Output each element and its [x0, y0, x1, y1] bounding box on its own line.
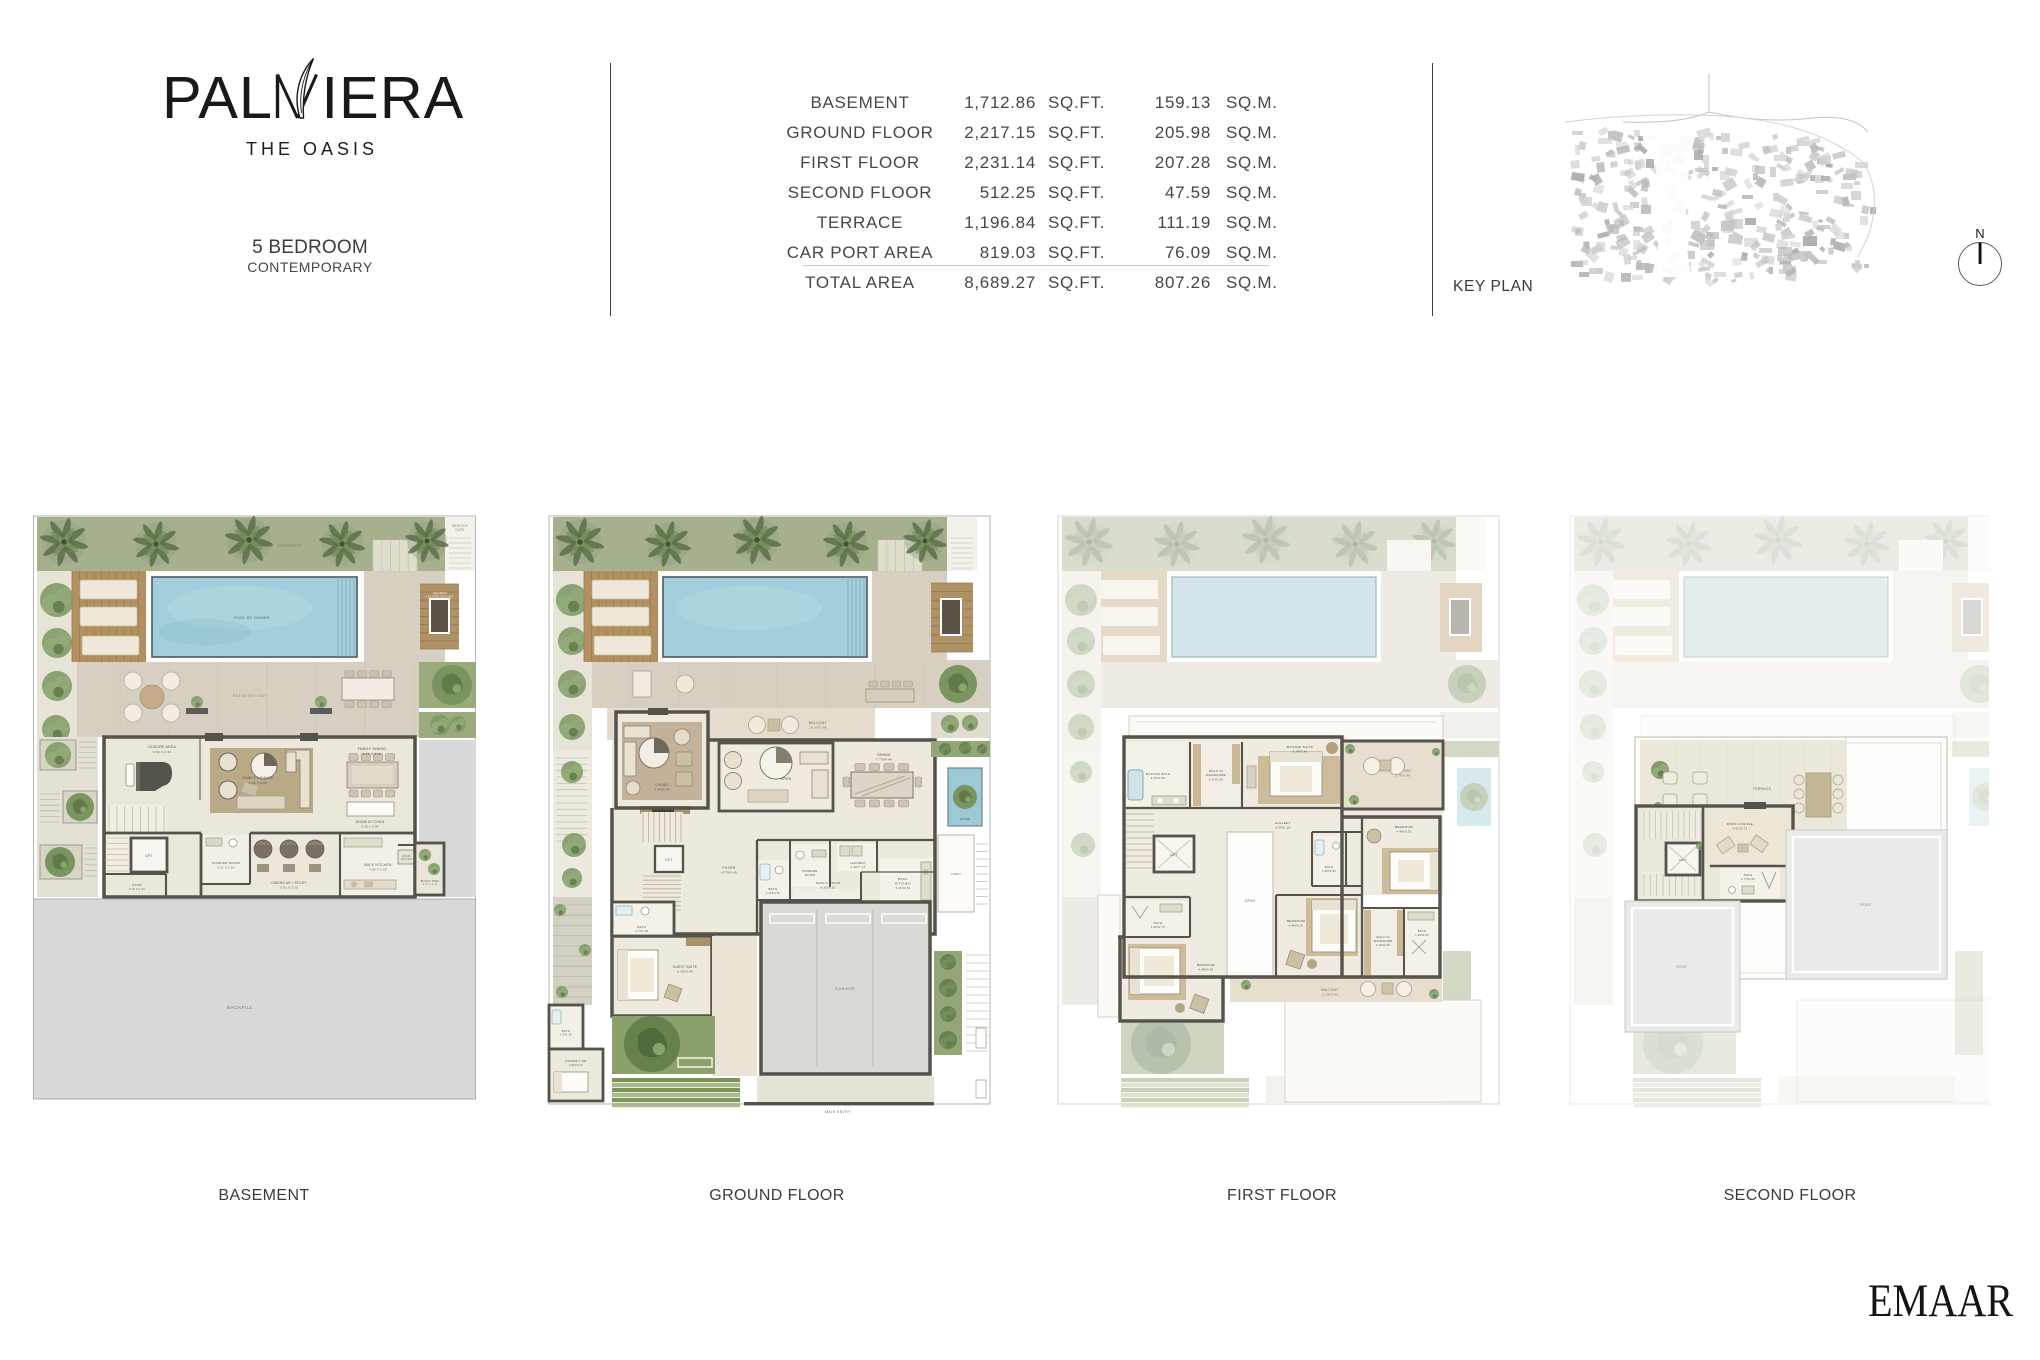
- svg-text:FAMILY DINING: FAMILY DINING: [358, 747, 387, 751]
- svg-text:STOR: STOR: [132, 883, 142, 887]
- svg-text:4.35X3.10: 4.35X3.10: [821, 885, 836, 889]
- svg-text:N: N: [1975, 226, 1984, 241]
- svg-text:WARDROBE: WARDROBE: [1206, 773, 1226, 777]
- svg-text:DRIVER'S RM: DRIVER'S RM: [565, 1059, 587, 1063]
- svg-text:PAL: PAL: [162, 64, 273, 131]
- svg-text:4.46 X 3.80: 4.46 X 3.80: [249, 781, 268, 785]
- svg-text:1.48X3.60: 1.48X3.60: [1415, 934, 1429, 937]
- svg-text:4.48X4.40: 4.48X4.40: [1199, 967, 1214, 971]
- svg-text:LAUNDRY: LAUNDRY: [850, 861, 866, 865]
- svg-text:ROOF: ROOF: [1676, 965, 1688, 969]
- svg-text:LIFT: LIFT: [665, 858, 673, 862]
- svg-text:BALCONY: BALCONY: [809, 721, 828, 725]
- svg-text:FOYER: FOYER: [722, 866, 735, 870]
- svg-text:11.08X3.45: 11.08X3.45: [1322, 992, 1339, 996]
- svg-text:4.46X3.51: 4.46X3.51: [896, 886, 911, 890]
- svg-text:BUGGY PARK: BUGGY PARK: [421, 880, 440, 883]
- svg-text:MASTER BATH: MASTER BATH: [1146, 772, 1170, 776]
- svg-text:3.61 X 2.20: 3.61 X 2.20: [280, 886, 298, 890]
- svg-text:FAMILY LOUNGE: FAMILY LOUNGE: [243, 776, 274, 780]
- svg-text:4.30X3.40: 4.30X3.40: [1151, 776, 1166, 780]
- svg-text:GATE: GATE: [455, 528, 465, 532]
- svg-text:1.88X2.75: 1.88X2.75: [1151, 926, 1165, 929]
- svg-text:ROOM: ROOM: [805, 873, 816, 877]
- svg-text:OPEN: OPEN: [951, 872, 961, 876]
- svg-text:CABINS AR / STUDY: CABINS AR / STUDY: [271, 881, 307, 885]
- svg-text:LIFT: LIFT: [1679, 858, 1686, 862]
- svg-text:2.71X1.80: 2.71X1.80: [1741, 878, 1755, 881]
- svg-text:3.60X3.20: 3.60X3.20: [569, 1064, 583, 1067]
- svg-text:SHOW KITCHEN: SHOW KITCHEN: [356, 820, 385, 824]
- svg-text:3.19 X 1.20: 3.19 X 1.20: [129, 888, 145, 891]
- svg-text:OPEN: OPEN: [1245, 899, 1256, 903]
- svg-text:EMAAR: EMAAR: [1868, 1276, 2014, 1326]
- svg-text:3.20 X 2.70: 3.20 X 2.70: [423, 884, 438, 886]
- svg-text:BATH: BATH: [638, 925, 647, 929]
- svg-text:ROOF LOUNGE: ROOF LOUNGE: [1727, 822, 1753, 826]
- svg-text:5.25 X 3.66: 5.25 X 3.66: [363, 752, 382, 756]
- svg-text:BEDROOM: BEDROOM: [1395, 825, 1413, 829]
- svg-text:DINING: DINING: [877, 753, 891, 757]
- svg-text:POOL BY OWNER: POOL BY OWNER: [234, 616, 270, 620]
- svg-text:POWDER ROOM: POWDER ROOM: [212, 861, 240, 865]
- svg-text:BATH: BATH: [1325, 865, 1334, 869]
- svg-text:1.2X1.35: 1.2X1.35: [560, 1034, 572, 1037]
- svg-text:LIVING: LIVING: [656, 783, 669, 787]
- svg-text:4.73X3.49: 4.73X3.49: [721, 871, 737, 875]
- svg-text:LEISURE AREA: LEISURE AREA: [148, 745, 177, 749]
- svg-text:WAITER: WAITER: [401, 858, 412, 861]
- svg-text:OPEN: OPEN: [781, 777, 792, 781]
- svg-text:4.61X2.71: 4.61X2.71: [1733, 826, 1748, 830]
- svg-text:BACK: BACK: [898, 877, 908, 881]
- svg-text:BATH: BATH: [562, 1029, 570, 1033]
- svg-text:5.25 x 2.00: 5.25 x 2.00: [361, 824, 378, 828]
- svg-text:TERRACE: TERRACE: [1753, 787, 1772, 791]
- svg-text:BATH: BATH: [1418, 929, 1426, 933]
- svg-text:GARAGE: GARAGE: [835, 986, 856, 991]
- svg-text:MAID'S ROOM: MAID'S ROOM: [816, 881, 840, 885]
- svg-text:1.88X3.80: 1.88X3.80: [1322, 870, 1336, 873]
- svg-text:KITCHEN: KITCHEN: [895, 881, 911, 885]
- svg-text:4.28X3.45: 4.28X3.45: [1293, 749, 1308, 753]
- svg-text:BACK KITCHEN: BACK KITCHEN: [364, 863, 392, 867]
- svg-text:5.28X3.96: 5.28X3.96: [677, 969, 693, 973]
- svg-text:LOUNGE SEATING: LOUNGE SEATING: [426, 595, 453, 599]
- svg-text:3.69 X 2.43: 3.69 X 2.43: [153, 750, 172, 754]
- svg-text:GARDEN: GARDEN: [278, 543, 302, 548]
- svg-text:BALCONY: BALCONY: [1321, 988, 1339, 992]
- svg-text:5 BEDROOM: 5 BEDROOM: [252, 237, 368, 258]
- svg-text:MAIN ENTRY: MAIN ENTRY: [825, 1110, 851, 1114]
- svg-text:2.7X1.96: 2.7X1.96: [636, 929, 649, 933]
- svg-text:BACKFILL: BACKFILL: [227, 1005, 253, 1010]
- svg-text:10.00X7.66: 10.00X7.66: [809, 726, 826, 730]
- svg-text:GUEST SUITE: GUEST SUITE: [673, 965, 698, 969]
- svg-text:SHADED: SHADED: [433, 591, 448, 595]
- svg-text:IERA: IERA: [322, 64, 465, 131]
- svg-text:BEDROOM: BEDROOM: [1287, 919, 1305, 923]
- svg-text:THE OASIS: THE OASIS: [246, 139, 378, 159]
- svg-text:BATH: BATH: [1744, 873, 1753, 877]
- svg-text:LIFT: LIFT: [1170, 853, 1178, 857]
- svg-text:4.48X4.20: 4.48X4.20: [1289, 923, 1304, 927]
- svg-text:2.28Y7.13: 2.28Y7.13: [851, 865, 866, 869]
- svg-text:1.40X3.20: 1.40X3.20: [766, 891, 781, 895]
- svg-text:PATIO SIT OUT: PATIO SIT OUT: [233, 694, 268, 698]
- svg-text:ROOF: ROOF: [1860, 903, 1872, 907]
- svg-text:6.40X5.30: 6.40X5.30: [654, 788, 670, 792]
- svg-text:WATER: WATER: [960, 817, 971, 821]
- svg-text:BEDROOM: BEDROOM: [1197, 963, 1215, 967]
- svg-text:7.73X4.46: 7.73X4.46: [876, 758, 892, 762]
- svg-text:BATH: BATH: [1154, 921, 1163, 925]
- svg-text:4.96 X 1.50: 4.96 X 1.50: [369, 867, 387, 871]
- svg-text:4.48X3.33: 4.48X3.33: [1397, 829, 1412, 833]
- svg-text:3.30X3.80: 3.30X3.80: [1209, 777, 1224, 781]
- svg-text:BATH: BATH: [769, 887, 778, 891]
- svg-text:CONTEMPORARY: CONTEMPORARY: [247, 259, 373, 275]
- svg-text:LIFT: LIFT: [145, 854, 153, 858]
- svg-text:GALLERY: GALLERY: [1275, 821, 1291, 825]
- svg-text:6.88X1.20: 6.88X1.20: [1276, 825, 1291, 829]
- svg-text:WARDROBE: WARDROBE: [1374, 939, 1393, 943]
- svg-text:MASTER SUITE: MASTER SUITE: [1287, 745, 1313, 749]
- svg-text:2.21 X 1.20: 2.21 X 1.20: [217, 865, 234, 869]
- svg-text:2.48X2.98: 2.48X2.98: [1376, 944, 1390, 947]
